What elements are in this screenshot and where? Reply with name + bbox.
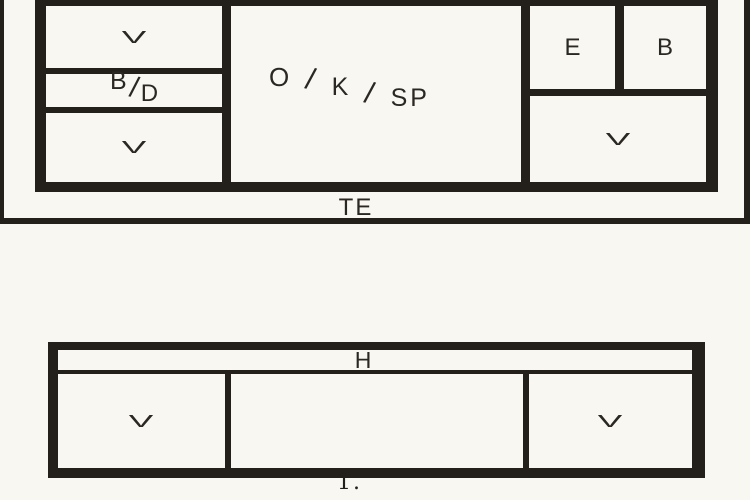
interior-wall-vertical-1	[222, 6, 231, 182]
room-label-e: E	[564, 36, 580, 60]
figure-caption: 1.	[337, 471, 362, 495]
room-e: E	[530, 6, 615, 89]
room-label-okps-o: O	[269, 64, 289, 90]
room-label-v: V	[122, 28, 147, 45]
room-label-bd-d: D	[141, 82, 158, 106]
room-label-bd: B/D	[110, 76, 158, 105]
room-v-right-lower: V	[529, 374, 692, 468]
room-v-bottom-left: V	[46, 113, 222, 182]
room-b: B	[624, 6, 706, 89]
room-middle-lower	[231, 374, 523, 468]
terrace-left-wall	[0, 0, 4, 224]
room-v-left-lower: V	[58, 374, 225, 468]
interior-wall-e-b	[615, 6, 624, 89]
room-label-v: V	[129, 412, 154, 429]
room-label-okps-slash1: /	[303, 64, 318, 95]
right-section: E B V	[530, 6, 706, 182]
upper-building-outline: V B/D V O/K/SP E B	[35, 0, 718, 192]
room-label-bd-b: B	[110, 69, 127, 94]
room-label-bd-slash: /	[127, 73, 141, 103]
room-o-k-sp: O/K/SP	[231, 6, 521, 182]
terrace-right-wall	[744, 0, 750, 224]
hall-label: H	[355, 349, 372, 372]
room-v-right: V	[530, 96, 706, 182]
floor-plan-figure: V B/D V O/K/SP E B	[0, 0, 750, 500]
room-label-okps-k: K	[332, 75, 349, 100]
room-bd: B/D	[46, 74, 222, 107]
room-label-v: V	[606, 130, 631, 147]
room-label-b: B	[657, 36, 673, 60]
lower-building-outline: H V V	[48, 342, 705, 478]
terrace-label: TE	[329, 196, 383, 220]
interior-wall-vertical-2	[521, 6, 530, 182]
room-label-okps: O/K/SP	[269, 64, 430, 94]
room-label-okps-sp: SP	[391, 86, 430, 111]
room-label-v: V	[598, 412, 623, 429]
interior-wall-right-horizontal	[530, 89, 706, 96]
room-label-okps-slash2: /	[362, 78, 377, 109]
room-label-v: V	[122, 139, 147, 156]
room-v-top-left: V	[46, 6, 222, 68]
hall-strip: H	[58, 350, 692, 370]
